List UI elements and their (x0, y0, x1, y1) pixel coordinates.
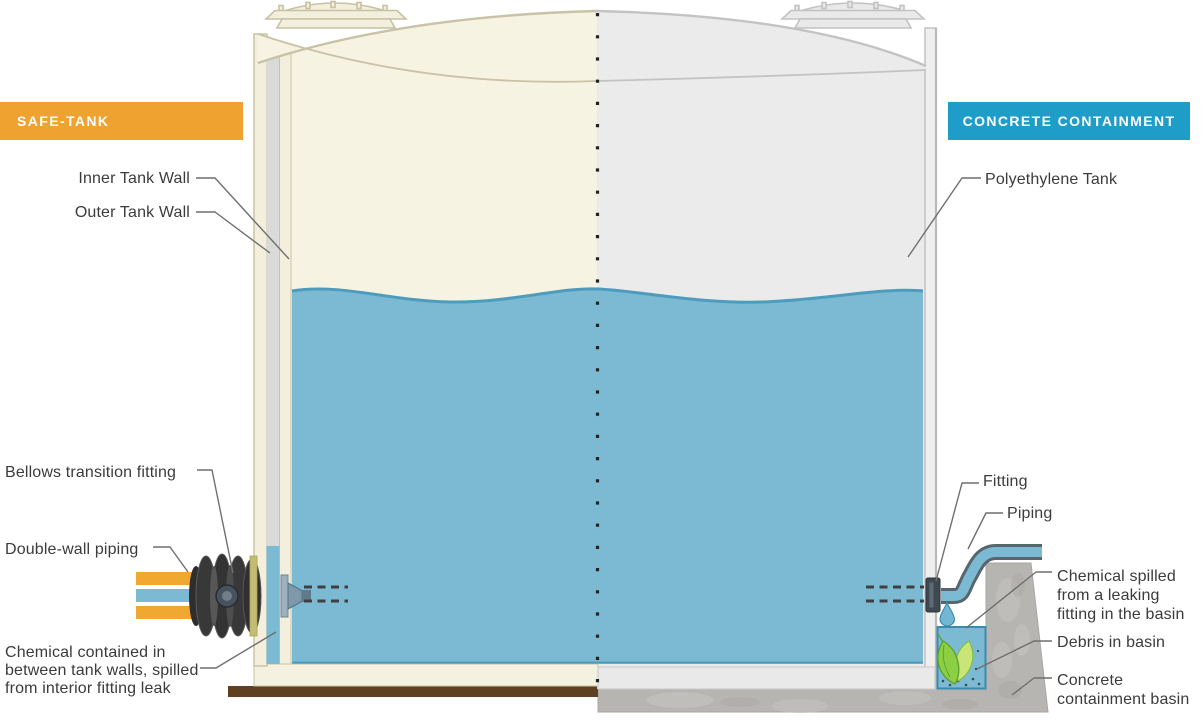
interstitial-chemical (267, 546, 280, 664)
label-fitting: Fitting (983, 472, 1028, 491)
label-chemical-contained: Chemical contained in between tank walls… (5, 644, 220, 698)
drip-droplet-icon (940, 603, 955, 626)
poly-tank-floor (598, 667, 935, 689)
manway-left-icon (266, 2, 406, 29)
manway-right-icon (782, 2, 924, 29)
label-inner-tank-wall: Inner Tank Wall (30, 169, 190, 188)
safe-tank-banner: SAFE-TANK (0, 102, 243, 140)
label-piping: Piping (1007, 504, 1052, 523)
label-double-wall-piping: Double-wall piping (5, 540, 138, 559)
label-outer-tank-wall: Outer Tank Wall (30, 203, 190, 222)
label-bellows-fitting: Bellows transition fitting (5, 463, 176, 482)
chemical-liquid (292, 289, 923, 664)
label-concrete-basin: Concrete containment basin (1057, 671, 1203, 709)
label-debris-in-basin: Debris in basin (1057, 633, 1165, 652)
label-polyethylene-tank: Polyethylene Tank (985, 170, 1117, 189)
safe-tank-floor (254, 664, 598, 686)
inner-tank-wall (280, 44, 292, 664)
tank-base-pad (228, 686, 598, 697)
label-chemical-spilled: Chemical spilled from a leaking fitting … (1057, 567, 1203, 624)
tank-comparison-diagram: SAFE-TANK CONCRETE CONTAINMENT Inner Tan… (0, 0, 1203, 720)
leaking-fitting (926, 578, 940, 612)
double-wall-structure (254, 34, 291, 666)
concrete-containment-banner: CONCRETE CONTAINMENT (948, 102, 1190, 140)
bellows-fitting (189, 554, 261, 638)
